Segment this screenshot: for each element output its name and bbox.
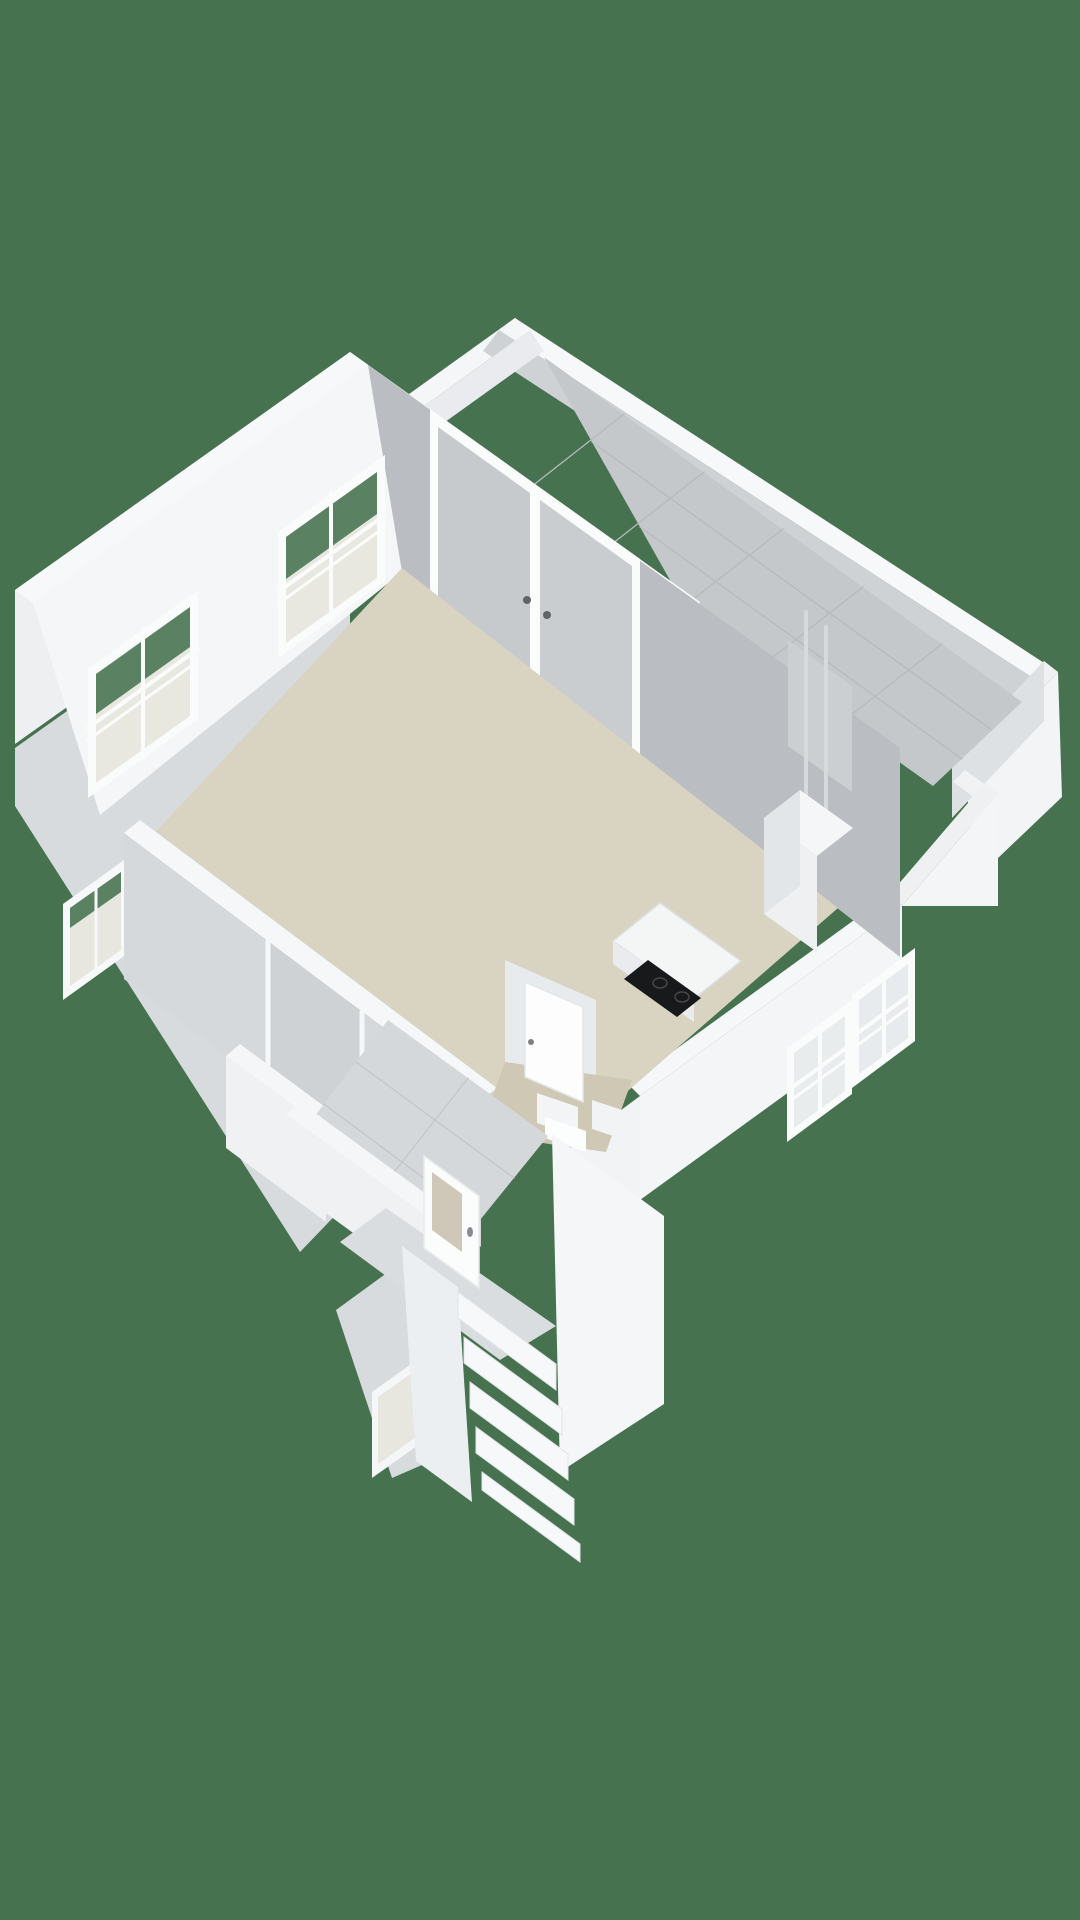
floorplan-stage — [0, 0, 1080, 1920]
french-door-handle — [523, 596, 531, 604]
floorplan-3d-view[interactable] — [0, 0, 1080, 1920]
front-door-handle — [467, 1227, 473, 1237]
toilet-door-handle — [528, 1039, 534, 1045]
french-door-handle — [543, 611, 551, 619]
